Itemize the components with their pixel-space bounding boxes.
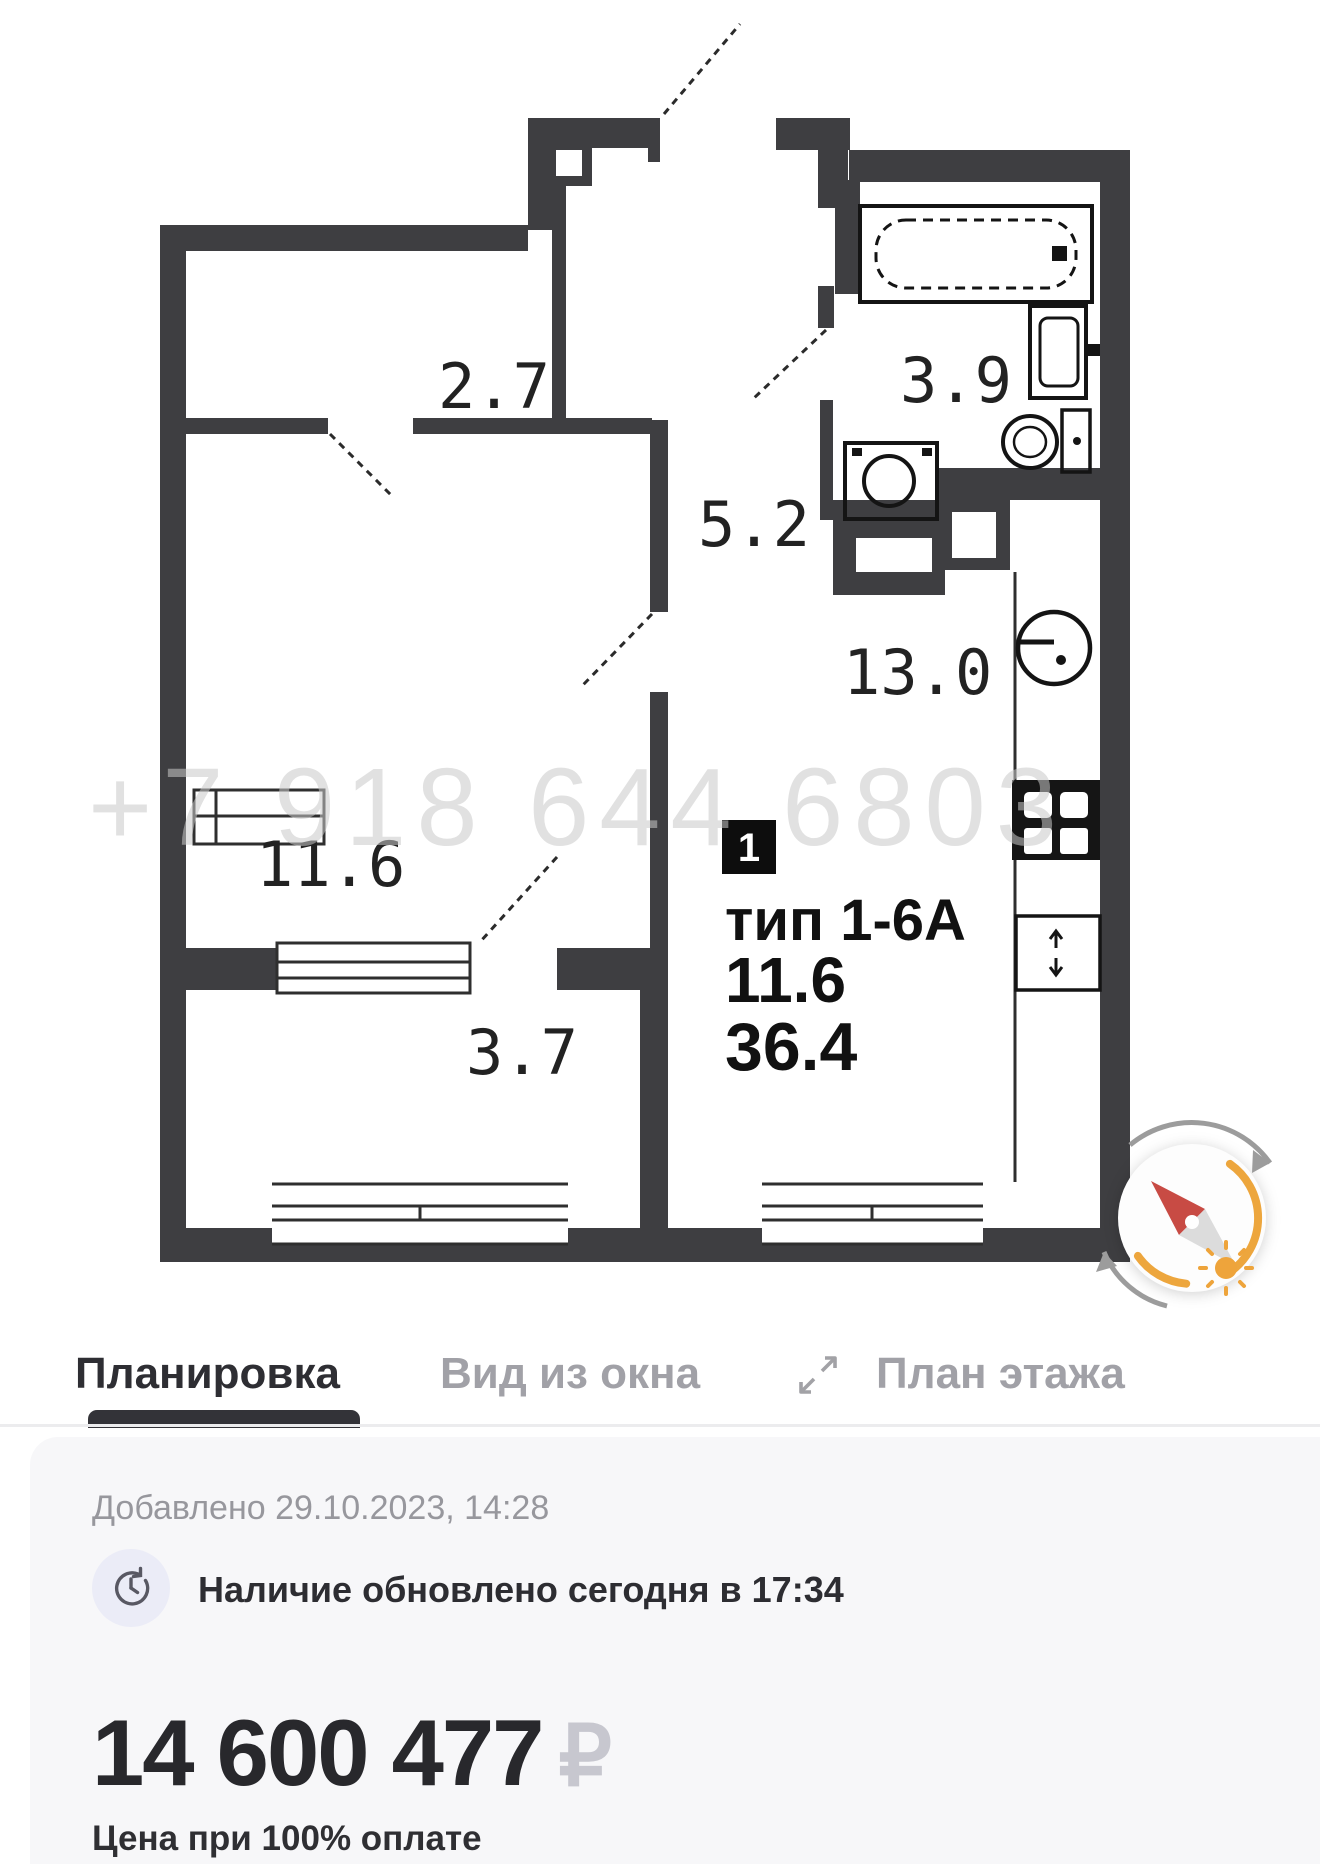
room-area-label: 3.7 (466, 1016, 578, 1089)
room-area-label: 3.9 (900, 344, 1012, 417)
ruble-sign: ₽ (558, 1709, 611, 1803)
tab-window-view[interactable]: Вид из окна (440, 1352, 700, 1396)
unit-total-area: 36.4 (725, 1009, 858, 1085)
floor-plan: 2.7 3.9 5.2 13.0 11.6 3.7 1 тип 1-6А 11.… (0, 0, 1320, 1320)
sun-icon (1200, 1242, 1252, 1294)
vent-box-icon (1016, 916, 1100, 990)
price-row: 14 600 477₽ (92, 1699, 612, 1807)
clock-refresh-icon (109, 1566, 153, 1610)
tab-layout[interactable]: Планировка (75, 1352, 340, 1396)
availability-status: Наличие обновлено сегодня в 17:34 (198, 1569, 844, 1611)
kitchen-sink-icon (1018, 612, 1090, 684)
room-area-label: 13.0 (843, 636, 992, 709)
expand-icon[interactable] (795, 1352, 841, 1398)
sink-icon (1030, 306, 1100, 398)
price-value: 14 600 477 (92, 1700, 542, 1805)
availability-icon-badge (92, 1549, 170, 1627)
tabs-divider (0, 1424, 1320, 1427)
tab-floor-plan[interactable]: План этажа (876, 1352, 1125, 1396)
phone-watermark: +7 918 644 6803 (88, 746, 1067, 869)
price-note: Цена при 100% оплате (92, 1819, 482, 1859)
bathtub-icon (860, 206, 1092, 302)
listing-info-card: Добавлено 29.10.2023, 14:28 Наличие обно… (30, 1437, 1320, 1864)
unit-living-area: 11.6 (725, 944, 846, 1016)
toilet-icon (1003, 410, 1090, 472)
room-area-label: 2.7 (438, 350, 550, 423)
added-date: Добавлено 29.10.2023, 14:28 (92, 1489, 549, 1528)
room-area-label: 5.2 (698, 488, 810, 561)
